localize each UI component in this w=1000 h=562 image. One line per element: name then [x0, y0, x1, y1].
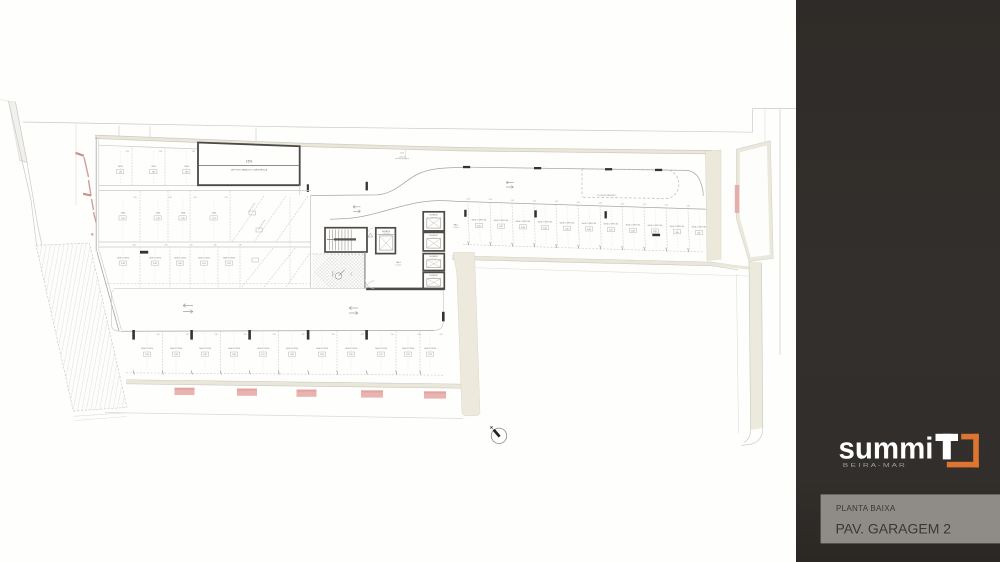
svg-text:2,30: 2,30 — [555, 201, 558, 203]
svg-text:2,30: 2,30 — [360, 334, 363, 336]
svg-text:2,30: 2,30 — [193, 197, 196, 199]
svg-text:2,30: 2,30 — [213, 244, 216, 246]
svg-text:2,30: 2,30 — [687, 205, 690, 207]
svg-text:B E I R A - M A R: B E I R A - M A R — [843, 463, 905, 469]
svg-text:15%: 15% — [246, 160, 253, 164]
svg-text:2,30: 2,30 — [224, 197, 227, 199]
svg-text:2,30: 2,30 — [643, 204, 646, 206]
svg-text:HALL: HALL — [396, 261, 402, 264]
svg-text:VAGA COMERCIAL: VAGA COMERCIAL — [604, 223, 619, 226]
svg-text:2,30: 2,30 — [189, 244, 192, 246]
svg-text:1,23 X 4,56: 1,23 X 4,56 — [431, 216, 437, 218]
svg-text:2,30: 2,30 — [665, 205, 668, 207]
svg-text:2,30: 2,30 — [214, 334, 217, 336]
svg-text:VAGA COMERCIAL: VAGA COMERCIAL — [494, 219, 509, 222]
svg-text:PLANTA BAIXA: PLANTA BAIXA — [836, 504, 896, 513]
svg-text:2,30: 2,30 — [133, 197, 136, 199]
svg-text:VAGA COMERCIAL: VAGA COMERCIAL — [516, 220, 531, 223]
svg-text:2,30: 2,30 — [417, 334, 420, 336]
svg-text:VAGA COMERCIAL: VAGA COMERCIAL — [626, 223, 641, 226]
svg-text:2,30: 2,30 — [489, 199, 492, 201]
svg-text:2,30: 2,30 — [159, 151, 162, 153]
svg-text:VAGA COMERCIAL: VAGA COMERCIAL — [692, 226, 707, 229]
svg-text:VAGA COMERCIAL: VAGA COMERCIAL — [648, 224, 663, 227]
svg-text:1,23 X 4,56: 1,23 X 4,56 — [431, 237, 437, 239]
svg-text:2,30: 2,30 — [467, 198, 470, 200]
svg-text:summi: summi — [839, 430, 934, 465]
svg-text:2,30: 2,30 — [164, 244, 167, 246]
svg-text:2,30: 2,30 — [126, 151, 129, 153]
svg-text:PROJEÇÃO PAVIMENTO: PROJEÇÃO PAVIMENTO — [597, 194, 617, 197]
svg-text:2,30: 2,30 — [621, 203, 624, 205]
svg-text:2,30: 2,30 — [168, 197, 171, 199]
svg-text:VAGA COMERCIAL: VAGA COMERCIAL — [560, 221, 575, 224]
svg-text:VAGA COMERCIAL: VAGA COMERCIAL — [582, 222, 597, 225]
svg-text:VAGA COMERCIAL: VAGA COMERCIAL — [538, 221, 553, 224]
svg-text:2,30: 2,30 — [192, 151, 195, 153]
svg-text:2,30: 2,30 — [577, 202, 580, 204]
svg-text:HALL: HALL — [453, 223, 459, 226]
svg-text:PAV. GARAGEM 2: PAV. GARAGEM 2 — [836, 522, 952, 538]
svg-text:1,23 X 4,56: 1,23 X 4,56 — [431, 258, 437, 260]
svg-text:VAGA COMERCIAL: VAGA COMERCIAL — [472, 219, 487, 222]
svg-text:12,34: 12,34 — [400, 153, 404, 155]
svg-text:2,30: 2,30 — [390, 334, 393, 336]
svg-text:2,30: 2,30 — [301, 334, 304, 336]
svg-text:2,30: 2,30 — [331, 334, 334, 336]
svg-text:DEPÓSITO PARA LIXO / EMERGÊNCI: DEPÓSITO PARA LIXO / EMERGÊNCIA — [231, 168, 268, 171]
svg-text:2,30: 2,30 — [156, 334, 159, 336]
svg-text:2,30: 2,30 — [238, 244, 241, 246]
svg-text:2,30: 2,30 — [599, 203, 602, 205]
svg-text:1,23 4,56: 1,23 4,56 — [398, 157, 405, 159]
svg-text:2,30: 2,30 — [272, 334, 275, 336]
svg-text:2,30: 2,30 — [511, 200, 514, 202]
svg-text:2,30: 2,30 — [185, 334, 188, 336]
svg-text:2,30: 2,30 — [439, 334, 442, 336]
svg-text:2,30: 2,30 — [533, 201, 536, 203]
svg-text:VAGA COMERCIAL: VAGA COMERCIAL — [670, 225, 685, 228]
svg-text:2,30: 2,30 — [132, 244, 135, 246]
svg-text:2,30: 2,30 — [243, 334, 246, 336]
svg-text:1,23 X 4,56: 1,23 X 4,56 — [431, 277, 437, 279]
